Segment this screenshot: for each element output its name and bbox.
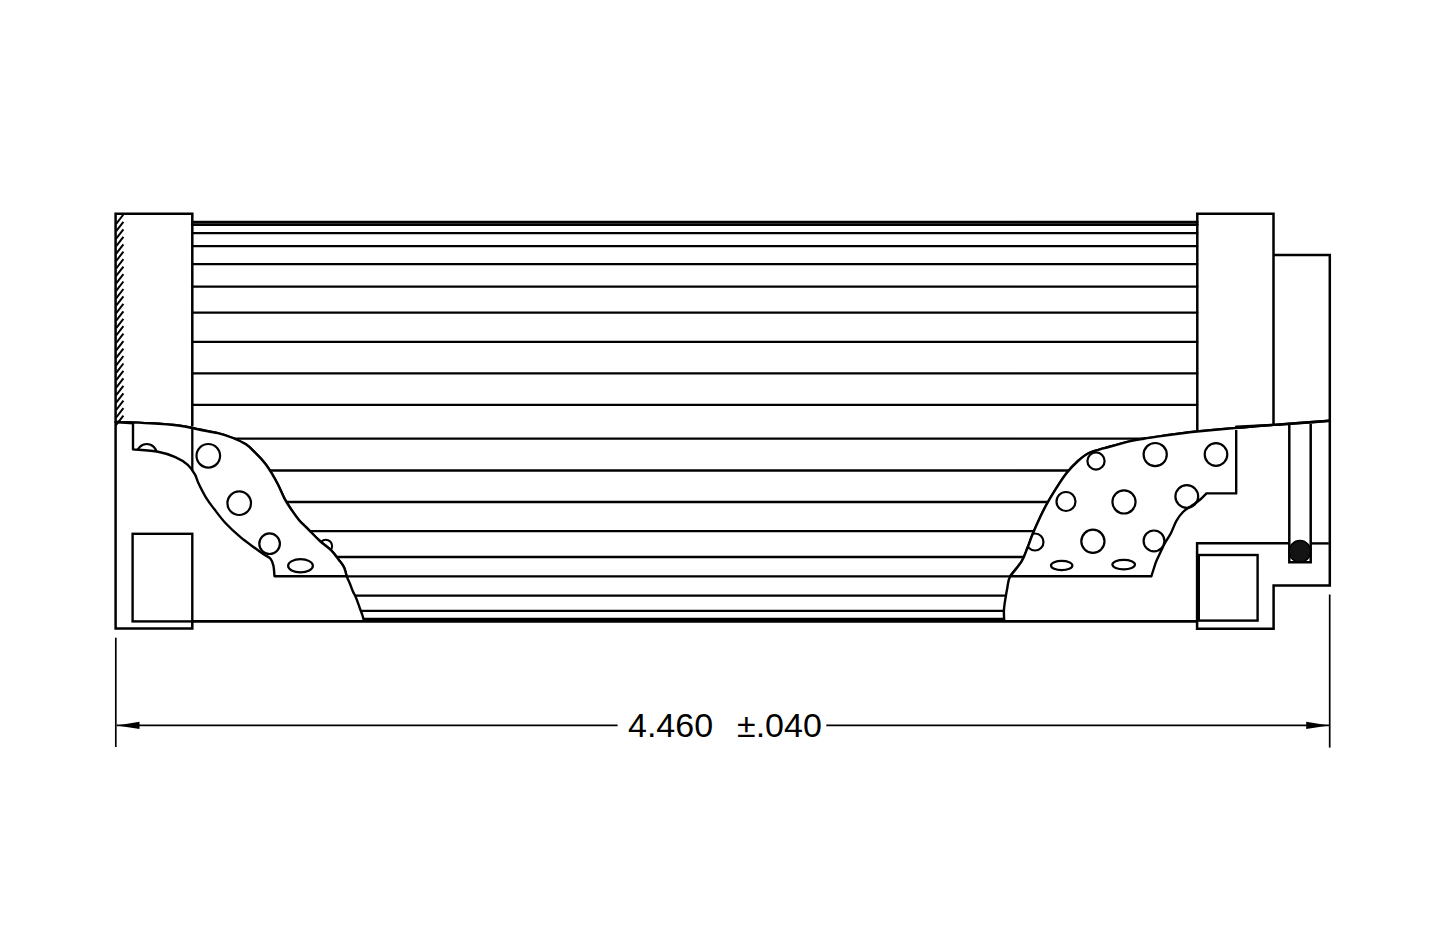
svg-text:±.040: ±.040 bbox=[737, 706, 822, 744]
svg-text:4.460: 4.460 bbox=[628, 706, 713, 744]
